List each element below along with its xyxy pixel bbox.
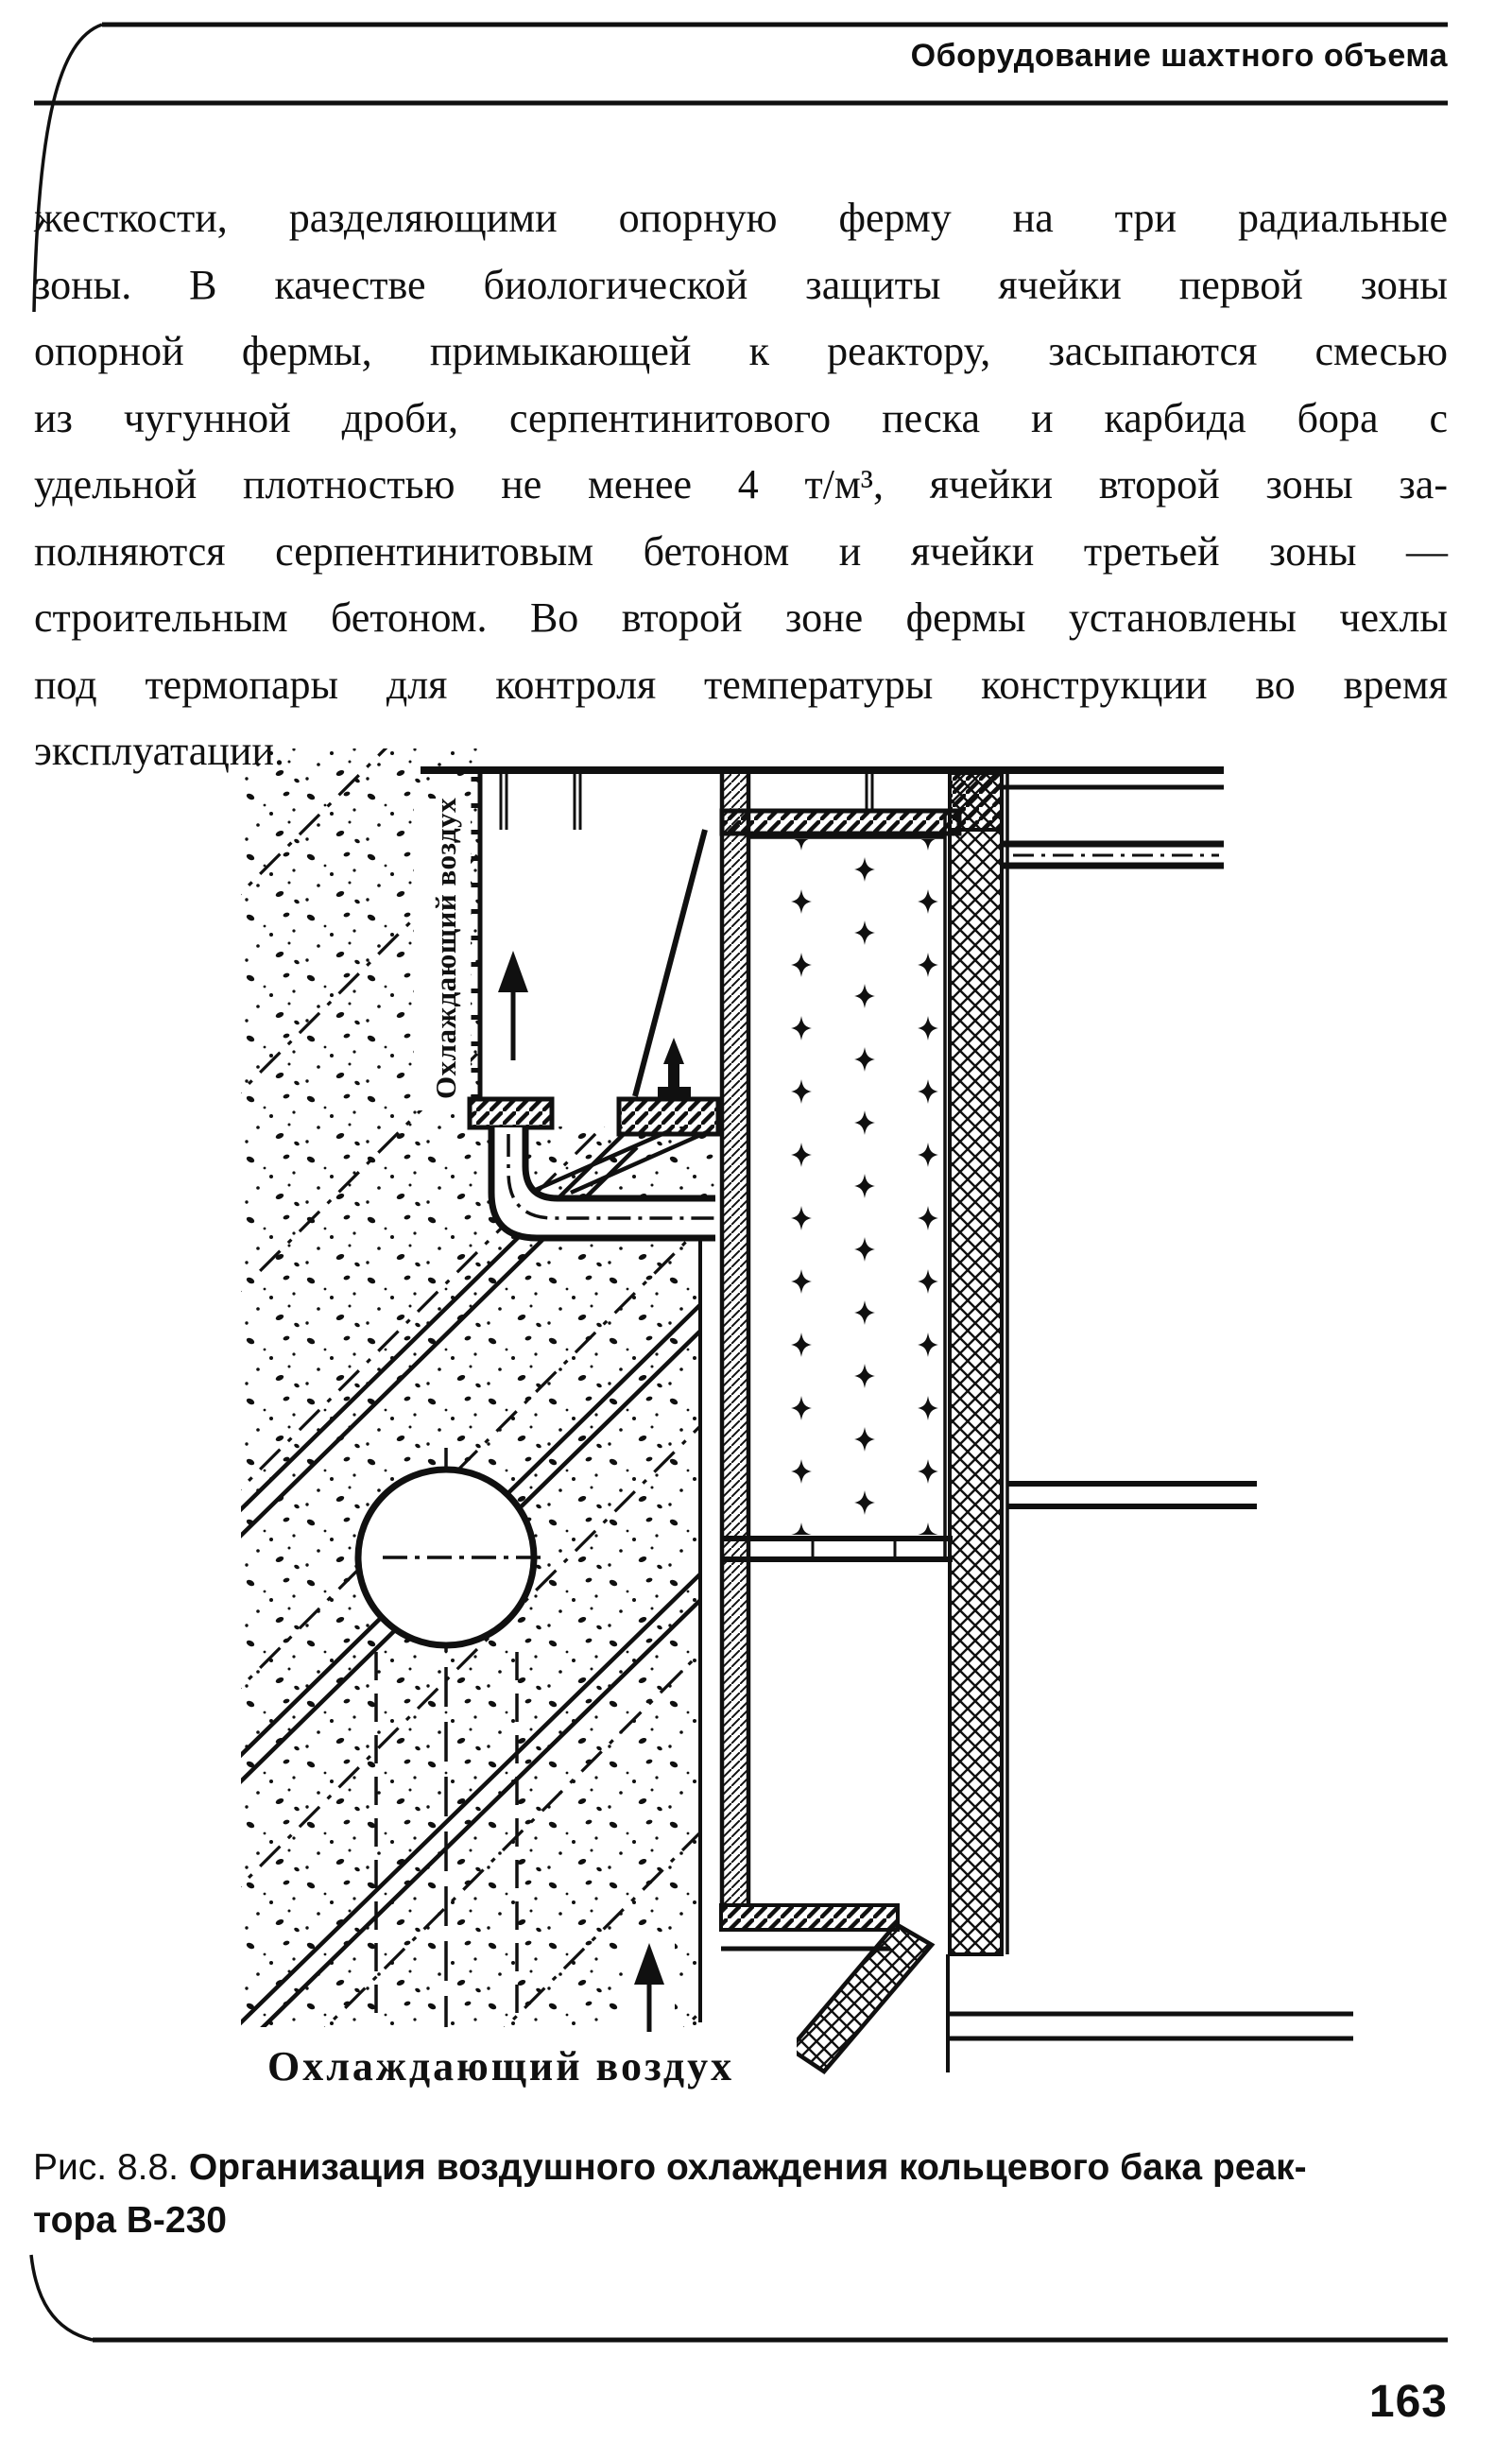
page-curl-top [34,25,102,312]
outlet-skirt [790,1924,932,2072]
ring-tank [720,773,959,1907]
page-curl-bottom [31,2255,93,2340]
mid-right-beam [1007,1484,1257,1506]
book-page: Оборудование шахтного объема жесткости, … [0,0,1512,2459]
tank-interior-fill [754,839,940,1535]
upper-right-beam [1002,844,1224,866]
bottom-deflector-plate [721,1905,898,1930]
channel-floor-plate [470,1099,552,1127]
tank-bottom [720,1539,953,1559]
anchor-bolt [658,1038,691,1100]
tank-left-wall [721,773,749,1907]
figure-8-8-diagram: Охлаждающий воздух [0,0,1512,2459]
tank-top-flange [722,811,959,834]
reactor-wall-column [948,773,1007,2072]
cooling-air-up-arrow [498,951,528,1060]
cooling-air-label-vertical: Охлаждающий воздух [429,798,462,1099]
bottom-outlet [721,1905,1353,2072]
cooling-air-label-bottom: Охлаждающий воздух [267,2043,734,2089]
tank-support-plate [619,1099,718,1134]
